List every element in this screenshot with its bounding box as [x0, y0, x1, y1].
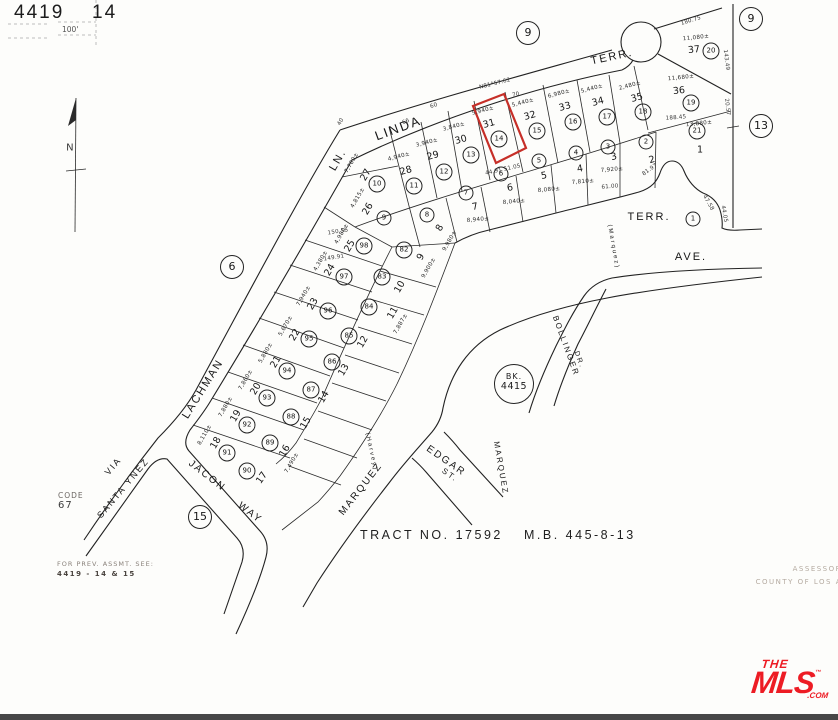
book-reference-label: BK.	[495, 372, 533, 381]
lot-number: 30	[454, 133, 469, 147]
tax-code-block: CODE 67	[58, 491, 84, 511]
dimension-label: 61.00	[601, 183, 618, 190]
previous-assessment-note: FOR PREV. ASSMT. SEE: 4419 - 14 & 15	[57, 560, 154, 578]
tract-number: TRACT NO. 17592	[360, 528, 503, 542]
parcel-number-circle: 91	[219, 445, 236, 462]
parcel-number-circle: 90	[239, 463, 256, 480]
street-label: LINDA	[373, 113, 424, 144]
lot-number: 36	[672, 85, 685, 97]
lot-number: 12	[355, 334, 371, 350]
lot-number: 37	[687, 44, 700, 56]
adjacent-page-ref-circle: 9	[516, 21, 540, 45]
parcel-number-circle: 86	[324, 354, 341, 371]
parcel-number-circle: 15	[529, 123, 546, 140]
parcel-number-circle: 14	[491, 131, 508, 148]
adjacent-page-ref-circle: 9	[739, 7, 763, 31]
previous-assessment-line1: FOR PREV. ASSMT. SEE:	[57, 560, 154, 568]
parcel-number-circle: 16	[565, 114, 582, 131]
street-label: MARQUEZ	[492, 441, 510, 496]
street-label: BOLLINGER	[551, 314, 581, 377]
lot-area-label: 2,480±	[618, 80, 641, 92]
trademark-symbol: ™	[815, 670, 821, 676]
dimension-label: 188.45	[665, 114, 686, 121]
street-label: TERR.	[628, 211, 671, 223]
dimension-label: 47.58	[701, 194, 715, 212]
parcel-number-circle: 6	[494, 167, 509, 182]
map-scale: 100'	[62, 25, 78, 34]
assessor-stamp-line2: COUNTY OF LOS A	[672, 576, 838, 589]
parcel-number-circle: 17	[599, 109, 616, 126]
tax-code-label: CODE	[58, 491, 84, 500]
parcel-number-circle: 93	[259, 390, 276, 407]
page-book-number: 4419	[14, 2, 64, 24]
lot-number: 2	[648, 154, 657, 166]
lot-number: 16	[277, 443, 293, 459]
lot-number: 4	[576, 163, 584, 175]
lot-area-label: 7,920±	[601, 166, 624, 174]
parcel-number-circle: 7	[459, 186, 474, 201]
parcel-number-circle: 13	[463, 147, 480, 164]
parcel-number-circle: 82	[396, 242, 413, 259]
parcel-number-circle: 85	[341, 328, 358, 345]
lot-area-label: 8,040±	[503, 198, 526, 206]
dimension-label: 180.75	[680, 15, 702, 27]
dimension-label: N81°57.62	[479, 77, 511, 91]
lot-number: 29	[426, 149, 441, 163]
lot-area-label: 3,840±	[442, 121, 465, 133]
lot-number: 17	[254, 470, 270, 486]
dimension-label: 20.57	[723, 98, 731, 116]
lot-number: 31	[482, 117, 497, 131]
street-label: AVE.	[675, 251, 707, 263]
parcel-number-circle: 83	[374, 269, 391, 286]
lot-number: 34	[591, 95, 606, 109]
parcel-number-circle: 89	[262, 435, 279, 452]
dimension-label: N	[66, 143, 74, 154]
street-label: VIA	[103, 455, 124, 477]
street-label: WAY	[236, 500, 265, 526]
parcel-number-circle: 92	[239, 417, 256, 434]
lot-area-label: 7,810±	[572, 178, 595, 186]
parcel-number-circle: 88	[283, 409, 300, 426]
map-labels-layer: LINDALN.TERR.LACHMANTERR.AVE.(Marquez)BO…	[0, 0, 838, 720]
dimension-label: 40	[337, 117, 346, 127]
parcel-number-circle: 3	[601, 140, 616, 155]
dimension-label: 70	[512, 91, 521, 99]
lot-number: 33	[558, 100, 573, 114]
parcel-number-circle: 96	[320, 303, 337, 320]
book-reference-value: 4415	[495, 381, 533, 392]
parcel-number-circle: 84	[361, 299, 378, 316]
parcel-number-circle: 19	[683, 95, 700, 112]
lot-number: 15	[298, 415, 314, 431]
lot-number: 7	[471, 201, 479, 213]
lot-area-label: 11,080±	[683, 34, 710, 43]
book-reference-badge: BK. 4415	[494, 364, 534, 404]
lot-number: 9	[415, 252, 428, 263]
parcel-number-circle: 98	[356, 238, 373, 255]
lot-area-label: 5,440±	[511, 97, 534, 109]
parcel-number-circle: 4	[569, 146, 584, 161]
lot-number: 5	[540, 170, 548, 182]
parcel-number-circle: 9	[377, 211, 392, 226]
lot-area-label: 8,940±	[467, 216, 490, 224]
parcel-number-circle: 97	[336, 269, 353, 286]
parcel-number-circle: 2	[639, 135, 654, 150]
lot-area-label: 5,940±	[471, 105, 494, 117]
lot-area-label: 6,980±	[547, 88, 570, 100]
map-book-reference: M.B. 445-8-13	[524, 528, 636, 542]
assessor-stamp-line1: ASSESSOR	[672, 563, 838, 576]
lot-number: 26	[360, 201, 376, 217]
assessor-map-page: LINDALN.TERR.LACHMANTERR.AVE.(Marquez)BO…	[0, 0, 838, 720]
parcel-number-circle: 20	[703, 43, 720, 60]
mls-logo: THE MLS™ .COM	[750, 657, 835, 700]
previous-assessment-line2: 4419 - 14 & 15	[57, 570, 154, 578]
lot-area-label: 8,080±	[538, 186, 561, 194]
lot-number: 32	[523, 109, 538, 123]
adjacent-page-ref-circle: 13	[749, 114, 773, 138]
street-label: TERR.	[590, 47, 635, 68]
street-label: JACON	[186, 458, 227, 494]
parcel-number-circle: 5	[532, 154, 547, 169]
parcel-number-circle: 11	[406, 178, 423, 195]
lot-number: 10	[392, 279, 408, 295]
street-label: SANTA YNEZ	[95, 456, 151, 520]
dimension-label: 143.49	[722, 49, 730, 70]
lot-number: 8	[434, 223, 447, 234]
street-label: (Harvey)	[364, 432, 378, 471]
street-label: (Marquez)	[606, 224, 620, 270]
adjacent-page-ref-circle: 6	[220, 255, 244, 279]
lot-area-label: 3,940±	[415, 137, 438, 149]
page-sheet-number: 14	[92, 2, 117, 24]
parcel-number-circle: 95	[301, 331, 318, 348]
lot-number: 1	[697, 145, 703, 156]
parcel-number-circle: 12	[436, 164, 453, 181]
parcel-number-circle: 10	[369, 176, 386, 193]
parcel-number-circle: 94	[279, 363, 296, 380]
parcel-number-circle: 8	[420, 208, 435, 223]
lot-number: 23	[305, 296, 321, 312]
assessor-stamp: ASSESSOR COUNTY OF LOS A	[672, 563, 838, 588]
lot-number: 6	[506, 182, 514, 194]
lot-area-label: 11,680±	[668, 74, 695, 83]
parcel-number-circle: 87	[303, 382, 320, 399]
tax-code-value: 67	[58, 500, 84, 511]
lot-number: 11	[385, 305, 401, 321]
lot-area-label: 4,940±	[387, 151, 410, 163]
lot-area-label: 9,980±	[442, 230, 458, 252]
adjacent-page-ref-circle: 15	[188, 505, 212, 529]
dimension-label: 60	[429, 102, 438, 110]
lot-number: 28	[399, 164, 414, 178]
parcel-number-circle: 18	[635, 104, 652, 121]
dimension-label: 44.05	[720, 205, 729, 223]
parcel-number-circle: 1	[686, 212, 701, 227]
lot-area-label: 5,440±	[580, 83, 603, 95]
bottom-divider-bar	[0, 714, 838, 720]
